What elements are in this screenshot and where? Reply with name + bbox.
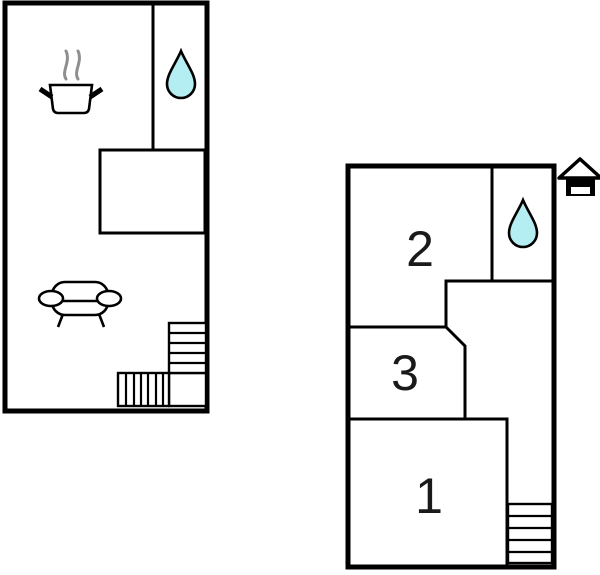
- house-door: [571, 187, 590, 194]
- floorplan-canvas: 2 3 1: [0, 0, 600, 575]
- floor-plan-right: 2 3 1: [348, 166, 554, 567]
- room-label-3: 3: [391, 345, 419, 401]
- stairs-landing: [169, 373, 206, 406]
- room-label-2: 2: [406, 221, 434, 277]
- house-roof: [559, 159, 600, 178]
- pot-body: [50, 85, 92, 113]
- sofa-armrest-left: [39, 291, 63, 306]
- floor-plan-left: [5, 3, 207, 411]
- house-icon: [559, 159, 600, 196]
- floorplan-drawing: 2 3 1: [0, 0, 600, 575]
- stairs-vertical-run: [169, 323, 206, 373]
- sofa-armrest-right: [97, 291, 121, 306]
- room-label-1: 1: [415, 468, 443, 524]
- stairs-icon: [508, 504, 552, 563]
- stairs-run: [508, 504, 552, 563]
